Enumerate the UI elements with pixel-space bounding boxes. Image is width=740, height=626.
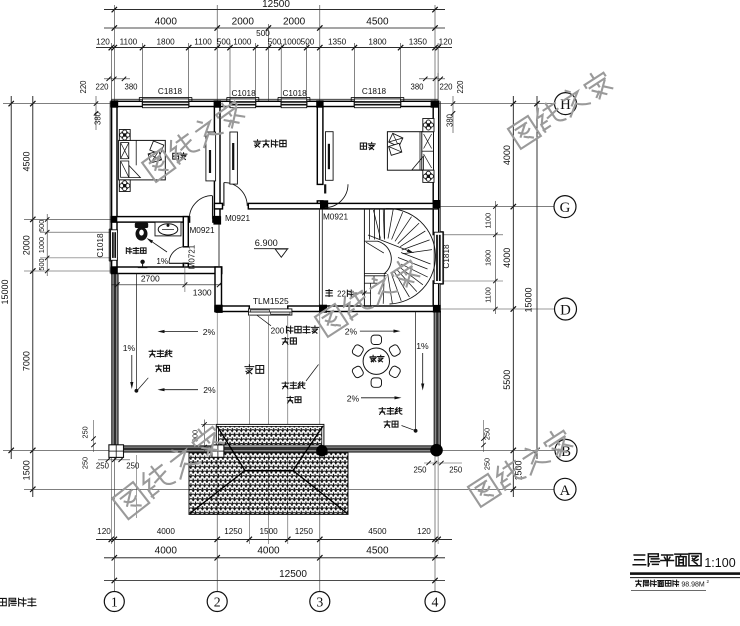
svg-text:1000: 1000	[233, 37, 252, 46]
svg-text:220: 220	[439, 82, 453, 91]
svg-text:2700: 2700	[141, 274, 160, 284]
svg-text:4000: 4000	[502, 145, 512, 165]
svg-text:2000: 2000	[232, 17, 255, 28]
svg-text:C1818: C1818	[362, 87, 387, 96]
svg-text:250: 250	[96, 461, 110, 470]
svg-text:12500: 12500	[262, 0, 290, 10]
svg-text:4000: 4000	[157, 527, 176, 536]
svg-text:1250: 1250	[224, 527, 243, 536]
svg-text:1:100: 1:100	[704, 556, 735, 570]
svg-text:1350: 1350	[409, 37, 428, 46]
svg-text:500: 500	[37, 258, 46, 270]
svg-text:C1018: C1018	[232, 89, 257, 98]
svg-text:1%: 1%	[156, 257, 168, 266]
svg-text:D: D	[560, 303, 571, 319]
svg-text:1000: 1000	[283, 37, 302, 46]
svg-text:200: 200	[271, 326, 285, 335]
svg-text:M0921: M0921	[189, 226, 214, 235]
svg-text:250: 250	[81, 457, 90, 469]
svg-text:2000: 2000	[283, 17, 306, 28]
svg-text:4500: 4500	[366, 546, 389, 557]
svg-text:3: 3	[316, 594, 323, 609]
svg-text:2: 2	[214, 594, 221, 609]
svg-text:220: 220	[79, 80, 88, 94]
svg-text:M0921: M0921	[323, 213, 348, 222]
svg-text:1: 1	[111, 594, 118, 609]
svg-text:1100: 1100	[483, 287, 492, 303]
svg-text:C1018: C1018	[283, 89, 308, 98]
svg-text:1350: 1350	[328, 37, 347, 46]
svg-text:2%: 2%	[347, 394, 360, 404]
svg-text:7000: 7000	[21, 351, 31, 371]
svg-text:15000: 15000	[0, 279, 10, 304]
svg-text:2%: 2%	[345, 327, 358, 337]
svg-text:1100: 1100	[194, 37, 212, 46]
svg-text:120: 120	[417, 527, 431, 536]
svg-text:1500: 1500	[259, 527, 278, 536]
svg-text:500: 500	[301, 37, 315, 46]
svg-text:1%: 1%	[123, 343, 136, 353]
svg-text:4: 4	[432, 594, 439, 609]
svg-text:4000: 4000	[155, 17, 178, 28]
svg-text:M0921: M0921	[225, 214, 250, 223]
svg-text:250: 250	[483, 458, 492, 470]
svg-text:4000: 4000	[155, 546, 178, 557]
svg-text:1%: 1%	[416, 341, 429, 351]
svg-text:1250: 1250	[295, 527, 314, 536]
svg-text:1300: 1300	[193, 288, 212, 298]
svg-text:: 98.98M: : 98.98M	[678, 582, 705, 589]
svg-text:500: 500	[37, 220, 46, 232]
svg-text:250: 250	[413, 466, 427, 475]
svg-text:1100: 1100	[120, 37, 138, 46]
svg-text:4500: 4500	[21, 151, 31, 171]
svg-text:220: 220	[456, 80, 465, 94]
svg-text:500: 500	[217, 37, 231, 46]
svg-text:4000: 4000	[502, 248, 512, 268]
svg-text:380: 380	[124, 82, 138, 91]
svg-text:220: 220	[95, 82, 109, 91]
svg-text:1500: 1500	[21, 460, 31, 480]
svg-text:C1818: C1818	[158, 87, 183, 96]
svg-text:1800: 1800	[156, 37, 175, 46]
svg-text:4500: 4500	[368, 527, 387, 536]
svg-text:500: 500	[268, 37, 282, 46]
svg-text:250: 250	[449, 466, 463, 475]
svg-text:120: 120	[96, 37, 110, 46]
svg-text:C1018: C1018	[96, 233, 105, 258]
svg-text:4000: 4000	[257, 546, 280, 557]
svg-text:2000: 2000	[21, 235, 31, 255]
svg-text:A: A	[560, 483, 571, 499]
svg-text:2%: 2%	[203, 385, 216, 395]
svg-text:G: G	[560, 200, 571, 216]
svg-text:250: 250	[126, 461, 140, 470]
svg-text:C1818: C1818	[442, 244, 451, 269]
svg-text:5500: 5500	[502, 370, 512, 390]
svg-text:120: 120	[97, 527, 111, 536]
svg-text:12500: 12500	[279, 569, 307, 580]
svg-text:2%: 2%	[203, 327, 216, 337]
svg-text:TLM1525: TLM1525	[253, 296, 289, 306]
svg-text:1000: 1000	[37, 237, 46, 253]
svg-text:120: 120	[439, 37, 453, 46]
svg-text:4500: 4500	[366, 17, 389, 28]
svg-text:380: 380	[94, 111, 103, 125]
svg-text:1100: 1100	[483, 213, 492, 229]
svg-text:380: 380	[410, 82, 424, 91]
svg-text:6.900: 6.900	[255, 238, 278, 248]
svg-text:M0721: M0721	[187, 244, 196, 269]
svg-text:250: 250	[81, 426, 90, 438]
svg-text:1800: 1800	[483, 250, 492, 266]
svg-text:1800: 1800	[368, 37, 387, 46]
